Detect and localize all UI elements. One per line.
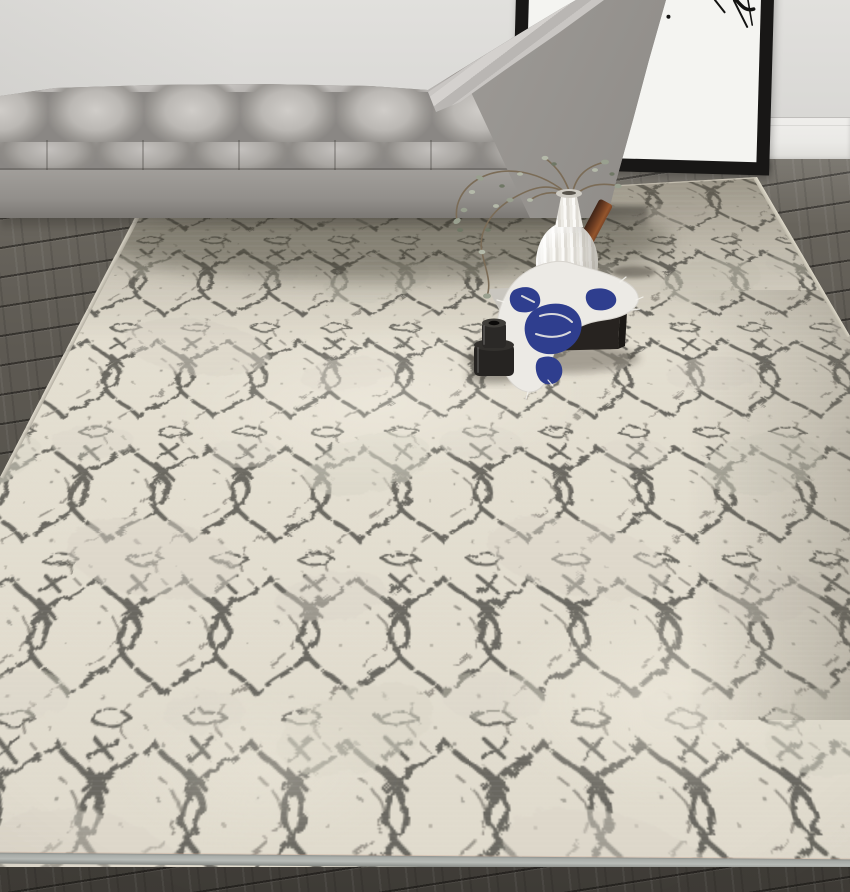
rug-pile-texture: [0, 160, 850, 892]
white-vase-mouth: [556, 189, 582, 198]
blue-floral-cloth: [493, 261, 643, 399]
room-scene: [0, 0, 850, 892]
vase-opening: [562, 191, 576, 195]
props-front: [470, 250, 670, 415]
